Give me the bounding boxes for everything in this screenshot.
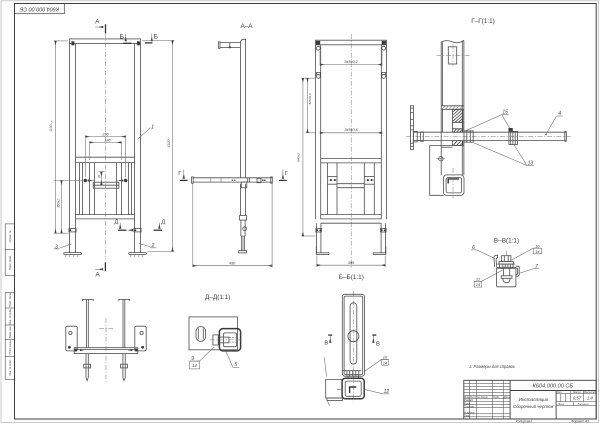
svg-text:В: В [376, 341, 380, 347]
svg-text:А: А [95, 18, 100, 25]
svg-text:5: 5 [234, 362, 237, 368]
svg-text:345±0,2: 345±0,2 [344, 60, 357, 64]
svg-text:40: 40 [97, 175, 101, 179]
svg-text:350±2: 350±2 [57, 199, 61, 208]
svg-text:Справ. №: Справ. № [8, 230, 12, 242]
svg-text:7: 7 [535, 264, 538, 270]
svg-text:490: 490 [229, 261, 235, 265]
svg-text:Масса: Масса [573, 391, 581, 394]
svg-text:1:4: 1:4 [587, 396, 593, 401]
svg-text:1: 1 [151, 124, 154, 130]
svg-text:1100₋₁₅: 1100₋₁₅ [49, 120, 53, 132]
svg-text:Лист: Лист [557, 403, 564, 406]
svg-text:Формат А3: Формат А3 [571, 420, 589, 424]
svg-text:14: 14 [192, 363, 197, 368]
svg-text:Инв. № подл.: Инв. № подл. [8, 359, 12, 375]
svg-text:Б: Б [154, 34, 158, 41]
svg-text:2: 2 [151, 243, 155, 249]
svg-text:Перв. прим.: Перв. прим. [8, 255, 12, 270]
svg-text:4: 4 [558, 111, 561, 117]
svg-text:14: 14 [476, 282, 481, 287]
svg-text:Б–Б(1:1): Б–Б(1:1) [339, 274, 364, 281]
svg-text:Утв.: Утв. [464, 414, 470, 417]
svg-text:Д: Д [114, 220, 118, 226]
svg-text:Инсталляция: Инсталляция [519, 397, 549, 402]
svg-text:Сборочный чертеж: Сборочный чертеж [513, 404, 555, 409]
svg-text:10: 10 [383, 355, 388, 360]
svg-text:Дата: Дата [503, 396, 511, 399]
svg-text:230: 230 [101, 133, 109, 137]
svg-text:К604.000.00 СБ: К604.000.00 СБ [533, 384, 574, 390]
svg-text:Подп. дата: Подп. дата [8, 340, 12, 355]
svg-text:345±0,5: 345±0,5 [344, 128, 358, 132]
svg-text:0,57: 0,57 [573, 396, 582, 401]
svg-text:А–А: А–А [240, 23, 253, 30]
svg-text:В: В [324, 341, 328, 347]
svg-text:Б: Б [120, 34, 124, 41]
svg-text:Т.контр.: Т.контр. [464, 405, 474, 408]
svg-text:Инв. № дубл.: Инв. № дубл. [8, 308, 12, 324]
svg-text:395: 395 [348, 261, 355, 265]
svg-text:14: 14 [535, 249, 540, 254]
svg-text:325±0,5: 325±0,5 [308, 93, 312, 104]
svg-text:Подп.: Подп. [493, 396, 500, 399]
svg-text:Г–Г(1:1): Г–Г(1:1) [471, 18, 495, 25]
svg-text:№ докум.: № докум. [477, 396, 488, 399]
svg-text:3: 3 [55, 244, 58, 250]
svg-text:В–В(1:1): В–В(1:1) [494, 237, 519, 244]
svg-text:Взам. инв.: Взам. инв. [8, 325, 12, 338]
svg-text:1320: 1320 [167, 140, 171, 148]
svg-text:1. Размеры для справок: 1. Размеры для справок [469, 364, 516, 369]
svg-text:Подп. дата: Подп. дата [8, 292, 12, 307]
svg-text:11: 11 [476, 276, 480, 281]
svg-text:Д: Д [161, 220, 165, 226]
svg-text:К604.000.00 СБ: К604.000.00 СБ [19, 5, 59, 11]
svg-text:640±2: 640±2 [297, 153, 301, 162]
svg-text:А: А [95, 271, 100, 278]
svg-text:13: 13 [528, 161, 534, 167]
svg-text:Лит.: Лит. [556, 391, 563, 394]
svg-text:Д–Д(1:1): Д–Д(1:1) [205, 294, 230, 301]
svg-text:Масштаб: Масштаб [584, 391, 596, 394]
svg-text:Листов 1: Листов 1 [576, 403, 589, 406]
svg-text:180: 180 [105, 139, 111, 143]
svg-text:10: 10 [535, 243, 540, 248]
svg-text:Копировал: Копировал [516, 420, 533, 424]
svg-text:14: 14 [383, 360, 388, 365]
